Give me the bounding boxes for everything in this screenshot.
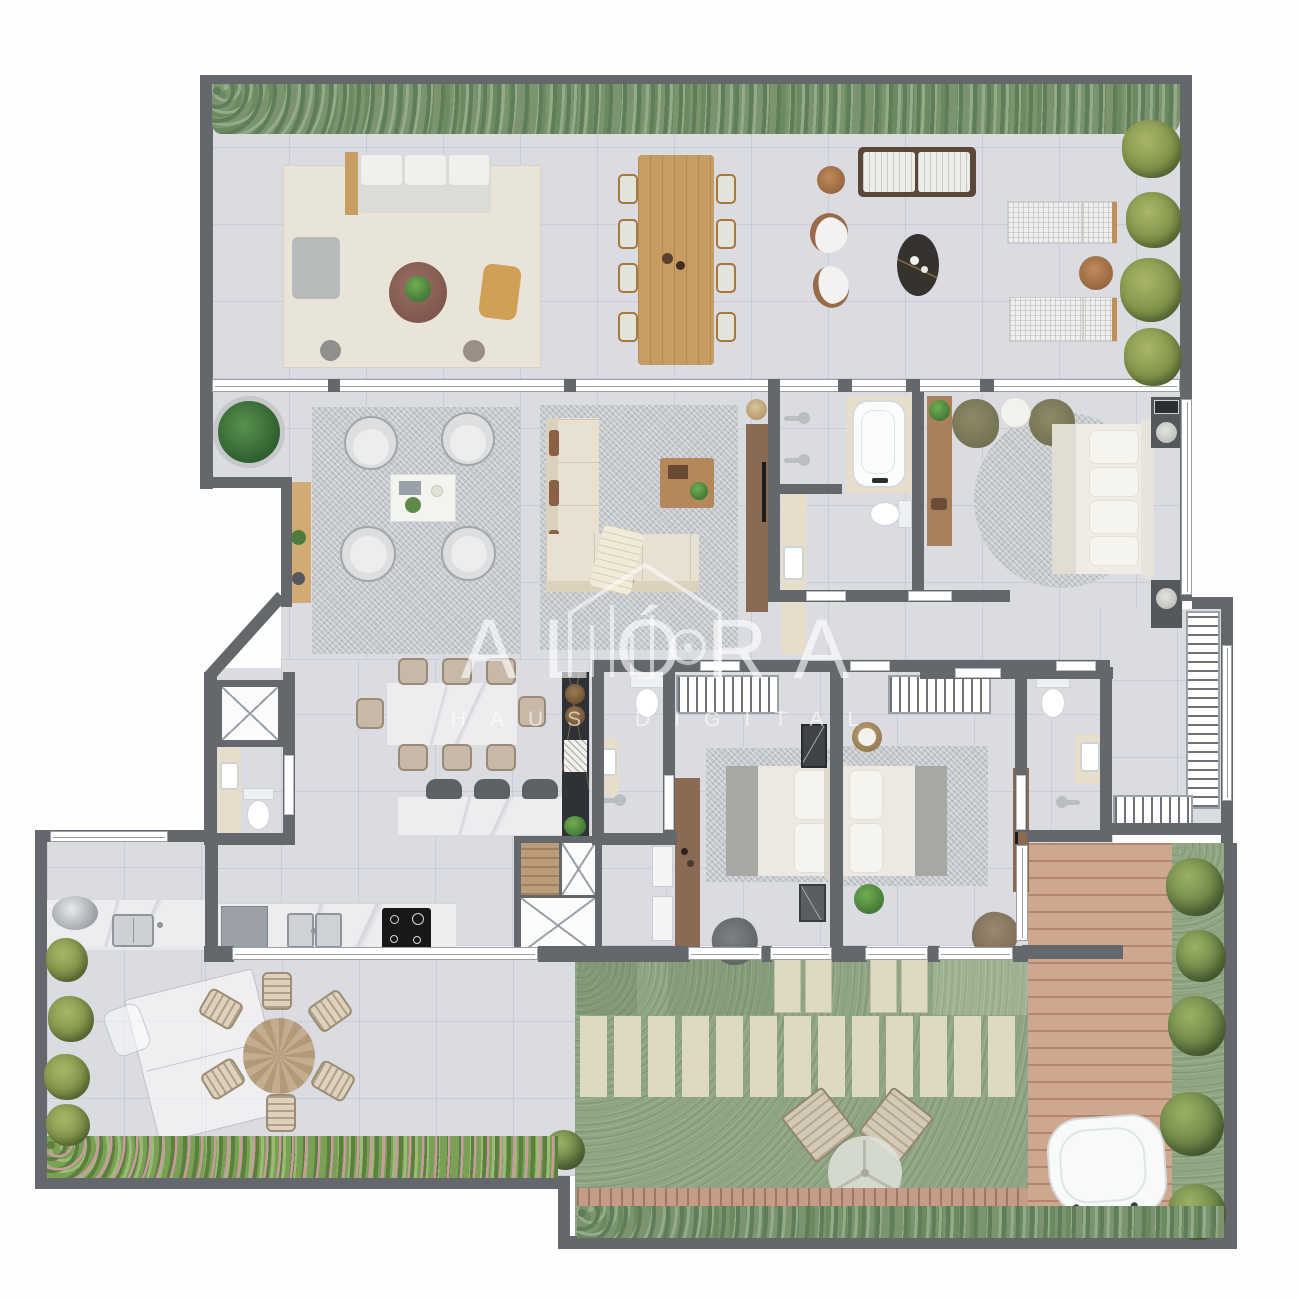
- dining-table: [387, 683, 517, 745]
- window-post: [906, 379, 920, 392]
- shaft-block: [514, 836, 602, 960]
- basket: [746, 399, 767, 420]
- exterior-wall: [281, 477, 292, 607]
- terrace-shrub: [1120, 258, 1182, 322]
- closet-rack-vertical: [1186, 611, 1220, 809]
- paver-path-slab: [805, 958, 832, 1013]
- plant-stand: [854, 884, 884, 914]
- sun-lounger: [1009, 297, 1117, 342]
- wall: [1100, 667, 1112, 835]
- master-toilet: [870, 500, 912, 528]
- seat-cushion: [353, 429, 389, 465]
- dining-chair: [442, 744, 472, 771]
- leaning-artwork: [801, 724, 827, 768]
- toilet-bowl: [1041, 688, 1065, 718]
- bed-pillow: [794, 770, 828, 820]
- door-opening: [908, 591, 952, 601]
- garden-hedge: [577, 1206, 1224, 1238]
- terrace-dining-chair: [716, 174, 736, 204]
- swivel-armchair: [340, 526, 396, 582]
- bedroom3-window: [938, 947, 1013, 960]
- terrace-side-table: [320, 340, 341, 361]
- cooktop: [382, 908, 431, 951]
- stepping-slab-row: [580, 1016, 1020, 1097]
- planter-shrub: [46, 938, 88, 982]
- vanity-sink: [1080, 742, 1100, 772]
- table-plant: [405, 497, 421, 513]
- bedroom2-closet-rack: [676, 675, 779, 714]
- terrace-round-coffee-table: [389, 262, 447, 323]
- window-post: [564, 379, 576, 392]
- fridge: [221, 906, 268, 951]
- bedroom2-desk: [675, 778, 700, 950]
- sofa-cushion: [918, 152, 970, 192]
- planter-shrub: [48, 996, 94, 1042]
- sideboard-bowl: [292, 572, 305, 585]
- dresser: [652, 896, 673, 941]
- terrace-dining-chair: [618, 219, 638, 249]
- bedroom2-window: [688, 947, 762, 960]
- nightstand-device: [1154, 400, 1179, 414]
- dining-chair: [518, 696, 546, 727]
- closet-window: [1222, 645, 1232, 801]
- bar-basin: [565, 706, 585, 726]
- outdoor-chair: [262, 972, 292, 1010]
- wall: [1013, 946, 1028, 962]
- gourmet-window: [50, 831, 168, 842]
- dining-chair: [398, 658, 428, 685]
- garden-tree: [1176, 930, 1226, 982]
- roof-hedge: [212, 84, 1180, 134]
- dining-chair: [442, 658, 472, 685]
- window-post: [768, 379, 780, 392]
- stone-bar-cabinet: [562, 672, 589, 836]
- wicker-side-table: [852, 722, 882, 752]
- wall: [592, 946, 690, 962]
- window-post: [980, 379, 994, 392]
- outdoor-round-table: [243, 1018, 315, 1094]
- burner: [412, 913, 424, 925]
- cup: [921, 266, 928, 273]
- bar-rack: [564, 740, 587, 772]
- kitchen-counter: [218, 902, 456, 952]
- sofa-cushion: [449, 155, 489, 185]
- garden-tree: [1168, 996, 1226, 1056]
- nightstand: [1151, 580, 1182, 628]
- master-wardrobe: [927, 396, 952, 546]
- wall: [832, 946, 867, 962]
- terrace-dining-chair: [618, 174, 638, 204]
- bedroom2-bed: [726, 762, 836, 880]
- deck-door: [1016, 845, 1028, 941]
- wall: [1022, 945, 1123, 959]
- terrace-dining-chair: [618, 312, 638, 342]
- powder-toilet: [243, 788, 274, 832]
- door-opening: [284, 755, 294, 815]
- terrace-dining-chair: [716, 219, 736, 249]
- sofa-cushion: [405, 155, 446, 185]
- bedroom3-window: [865, 947, 928, 960]
- nightstand-lamp: [1156, 422, 1177, 443]
- powder-vanity: [218, 748, 241, 834]
- sofa-cushion: [863, 152, 915, 192]
- bedroom3-closet-rack: [888, 675, 991, 714]
- terrace-sofa: [345, 152, 491, 215]
- table-plant: [690, 482, 708, 500]
- master-armchair: [952, 399, 999, 448]
- exterior-wall: [200, 477, 292, 488]
- door-opening: [1056, 661, 1096, 671]
- kitchen-sink: [315, 913, 342, 948]
- burner: [413, 936, 421, 944]
- bathtub-inner: [861, 410, 895, 474]
- terrace-wood-side-table: [1079, 256, 1113, 290]
- exterior-wall: [1100, 823, 1233, 835]
- terrace-dining-chair: [716, 263, 736, 293]
- faucet: [157, 922, 163, 928]
- bed-runner: [726, 766, 758, 876]
- sofa-wood-arm: [345, 152, 358, 215]
- bed-pillow: [849, 770, 883, 820]
- desk-item: [687, 860, 694, 867]
- bar-basin: [565, 684, 585, 704]
- powder-sink: [220, 762, 239, 790]
- swivel-armchair: [344, 416, 398, 470]
- nightstand-lamp: [1156, 588, 1177, 609]
- master-side-table: [1000, 397, 1031, 428]
- service-shaft: [215, 680, 285, 747]
- bed-pillow: [849, 823, 883, 873]
- wall: [205, 842, 218, 962]
- cup: [910, 256, 919, 265]
- wall: [768, 590, 1010, 602]
- bed-pillow: [1089, 500, 1139, 534]
- wall: [592, 833, 677, 845]
- toilet-bowl: [870, 502, 900, 526]
- master-bedroom-window: [1181, 399, 1192, 595]
- kitchen-window: [232, 947, 538, 960]
- faucet: [311, 928, 317, 934]
- parasol-hub: [861, 1169, 869, 1177]
- terrace-sink: [112, 914, 154, 947]
- duct-shaft-wood: [521, 843, 559, 895]
- exterior-wall: [200, 75, 213, 489]
- terrace-side-table: [463, 340, 485, 362]
- seat-cushion: [450, 425, 486, 461]
- exterior-wall: [204, 672, 217, 842]
- window-band: [212, 379, 1180, 392]
- lounger-headrest-seam: [1081, 202, 1083, 243]
- terrace-shrub: [1122, 120, 1182, 178]
- wood-coffee-table: [660, 458, 714, 508]
- exterior-wall: [1224, 843, 1237, 1249]
- lounger-wood-bar: [1112, 202, 1117, 243]
- terrace-dining-chair: [618, 263, 638, 293]
- bar-stool: [522, 779, 558, 799]
- bedroom2-toilet: [630, 676, 664, 720]
- bar-plant: [564, 816, 586, 836]
- door-opening: [700, 661, 740, 671]
- wall: [204, 946, 234, 962]
- sofa-cushion: [361, 155, 402, 185]
- sun-lounger: [1007, 201, 1117, 244]
- outdoor-chair: [266, 1094, 296, 1132]
- table-top: [858, 728, 876, 746]
- wall: [592, 660, 604, 845]
- table-dish: [431, 485, 443, 497]
- tv-screen: [762, 462, 766, 522]
- bed-pillow: [1089, 536, 1139, 566]
- window-post: [838, 379, 852, 392]
- vanity-sink: [783, 546, 804, 580]
- sideboard-plant: [291, 530, 306, 545]
- table-centerpiece: [662, 253, 673, 264]
- toilet-tank: [630, 676, 664, 688]
- bar-stool: [474, 779, 510, 799]
- bedroom3-bed: [837, 762, 947, 880]
- door-opening: [1016, 775, 1026, 830]
- bed-runner: [915, 766, 947, 876]
- lounger-wood-bar: [1112, 298, 1117, 341]
- wardrobe-plant: [929, 400, 950, 421]
- wall: [768, 484, 842, 494]
- square-coffee-table: [390, 474, 456, 522]
- window-post: [328, 379, 340, 392]
- terrace-shrub: [1124, 328, 1182, 386]
- leaning-artwork: [799, 884, 826, 922]
- bar-stool: [426, 779, 462, 799]
- sink-divider: [133, 918, 134, 943]
- seat-cushion: [350, 536, 387, 573]
- desk-item: [681, 848, 688, 855]
- toilet-tank: [898, 500, 912, 528]
- table-plant: [405, 276, 431, 302]
- terrace-stool: [478, 263, 522, 321]
- flower-hedge: [47, 1136, 558, 1178]
- terrace-dining-table: [638, 155, 714, 365]
- toilet-tank: [243, 788, 274, 800]
- table-book: [399, 481, 421, 495]
- mowed-patch: [577, 958, 637, 1015]
- sofa-pillow: [549, 430, 559, 456]
- terrace-slatted-sofa: [858, 147, 976, 197]
- door-opening: [664, 775, 674, 830]
- door-opening: [806, 591, 846, 601]
- floor-plan: ALÓRA HAUS DIGITAL: [0, 0, 1300, 1299]
- bathtub-fitting: [872, 478, 888, 483]
- terrace-dining-chair: [716, 312, 736, 342]
- table-centerpiece: [676, 261, 685, 270]
- dining-chair: [486, 658, 516, 685]
- dining-chair: [356, 698, 384, 729]
- lounger-headrest-seam: [1082, 298, 1084, 341]
- shower-head: [614, 794, 626, 806]
- shower-head: [798, 412, 810, 424]
- wall: [830, 672, 843, 958]
- master-bed: [1052, 419, 1154, 579]
- terrace-shrub: [1126, 192, 1182, 248]
- kitchen-island: [398, 797, 562, 835]
- burner: [390, 915, 399, 924]
- planter-shrub: [44, 1054, 90, 1100]
- bed-blanket-fold: [1052, 424, 1076, 574]
- planter-shrub: [46, 1104, 90, 1146]
- garden-tree: [1160, 1092, 1224, 1156]
- exterior-wall: [35, 830, 47, 1189]
- bed-pillow: [794, 823, 828, 873]
- wall: [912, 392, 924, 594]
- burner: [390, 935, 398, 943]
- swivel-armchair: [441, 526, 496, 581]
- paver-path-slab: [901, 958, 928, 1013]
- dining-chair: [398, 744, 428, 771]
- swivel-armchair: [441, 412, 495, 466]
- mowed-patch: [668, 958, 775, 1015]
- wall: [538, 946, 600, 962]
- seat-cushion: [451, 536, 487, 572]
- bedroom3-toilet: [1036, 676, 1070, 720]
- jacuzzi-basin: [1057, 1125, 1148, 1205]
- door-opening: [850, 661, 890, 671]
- mowed-patch: [933, 958, 1028, 1015]
- shower-head: [798, 454, 810, 466]
- paver-path-slab: [774, 958, 801, 1013]
- oval-stone-coffee-table: [897, 234, 939, 296]
- dresser: [652, 846, 673, 887]
- bed-pillow: [1089, 430, 1139, 464]
- kettle-grill: [52, 896, 98, 930]
- tv-panel: [746, 424, 768, 612]
- terrace-wood-side-table: [817, 166, 845, 194]
- garden-tree: [1166, 858, 1224, 916]
- sofa-pillow: [549, 480, 559, 506]
- kitchen-sink: [287, 913, 314, 948]
- duct-shaft: [562, 843, 595, 895]
- table-tray: [668, 465, 688, 479]
- dining-chair: [486, 744, 516, 771]
- bed-pillow: [1089, 467, 1139, 497]
- duct-shaft: [521, 898, 595, 953]
- toilet-bowl: [247, 800, 270, 830]
- large-potted-plant: [213, 396, 285, 468]
- nightstand: [1151, 397, 1182, 448]
- terrace-pouf: [292, 237, 340, 299]
- wardrobe-bag: [931, 498, 947, 510]
- paver-path-slab: [870, 958, 897, 1013]
- toilet-bowl: [635, 688, 659, 718]
- door-opening: [955, 668, 1001, 678]
- bedroom2-window: [770, 947, 832, 960]
- shower-head: [1056, 796, 1068, 808]
- bathtub: [852, 400, 906, 488]
